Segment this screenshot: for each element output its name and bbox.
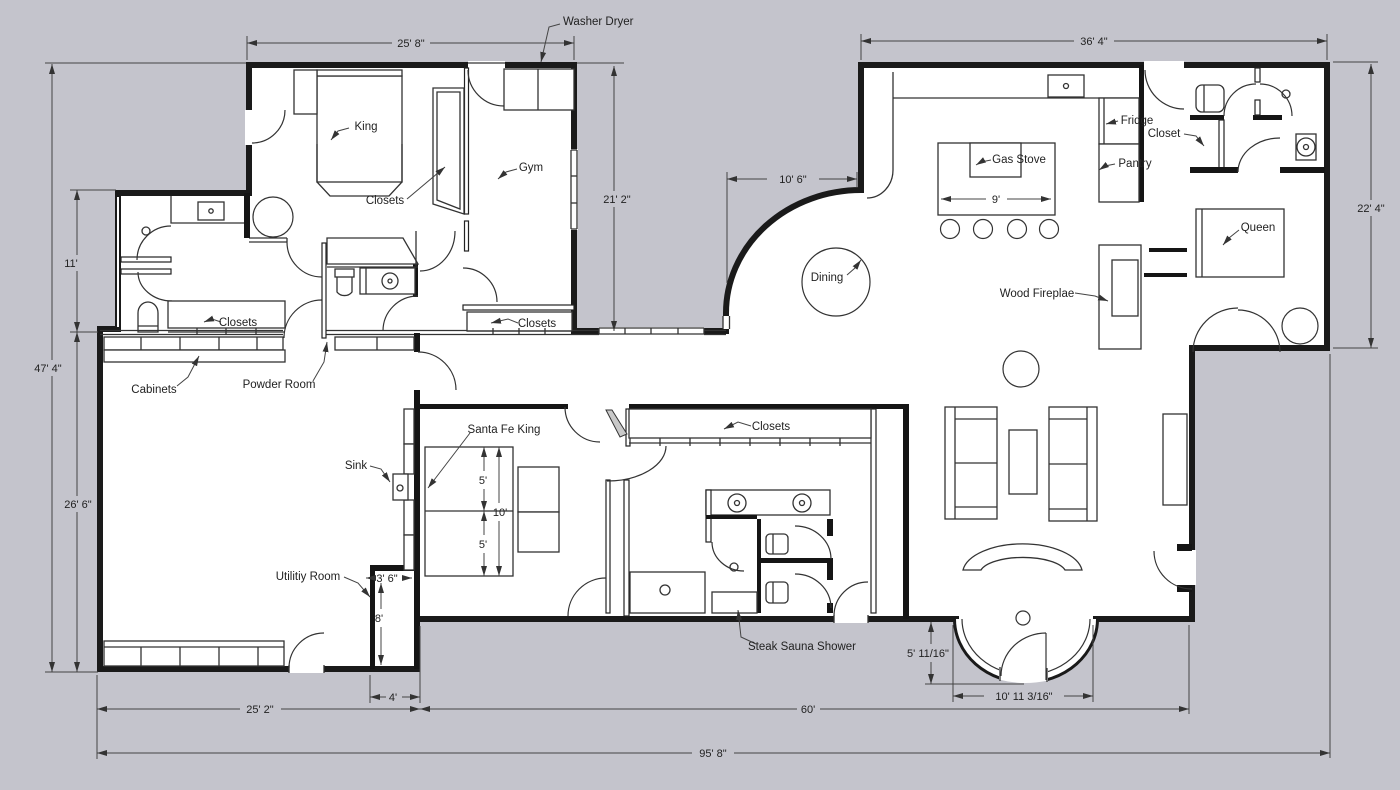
svg-text:Closets: Closets [752, 421, 791, 433]
svg-text:Closets: Closets [518, 318, 557, 330]
svg-text:Closets: Closets [366, 195, 405, 207]
svg-text:25' 8": 25' 8" [397, 38, 425, 50]
svg-text:10' 11 3/16": 10' 11 3/16" [995, 691, 1052, 703]
svg-text:Washer Dryer: Washer Dryer [563, 16, 634, 28]
svg-text:10': 10' [493, 507, 507, 519]
svg-text:8': 8' [375, 613, 383, 625]
svg-text:Closets: Closets [219, 317, 258, 329]
svg-text:Fridge: Fridge [1121, 115, 1154, 127]
svg-text:47' 4": 47' 4" [34, 363, 62, 375]
svg-text:5': 5' [479, 539, 487, 551]
svg-text:Utilitiy Room: Utilitiy Room [276, 571, 341, 583]
svg-text:Pantry: Pantry [1118, 158, 1151, 170]
svg-text:9': 9' [992, 194, 1000, 206]
svg-text:22' 4": 22' 4" [1357, 203, 1385, 215]
svg-text:26' 6": 26' 6" [64, 499, 92, 511]
svg-text:60': 60' [801, 704, 815, 716]
svg-text:5' 11/16": 5' 11/16" [907, 648, 949, 660]
svg-text:Wood Fireplae: Wood Fireplae [1000, 288, 1075, 300]
svg-text:Queen: Queen [1241, 222, 1276, 234]
svg-text:King: King [354, 121, 377, 133]
svg-text:Closet: Closet [1148, 128, 1181, 140]
svg-text:3' 6": 3' 6" [376, 573, 397, 585]
svg-text:5': 5' [479, 475, 487, 487]
svg-text:Gym: Gym [519, 162, 543, 174]
svg-text:Gas Stove: Gas Stove [992, 154, 1046, 166]
svg-text:11': 11' [64, 258, 78, 270]
svg-text:95' 8": 95' 8" [699, 748, 727, 760]
svg-text:Cabinets: Cabinets [131, 384, 177, 396]
svg-text:Powder Room: Powder Room [243, 379, 316, 391]
svg-text:4': 4' [389, 692, 397, 704]
svg-text:25' 2": 25' 2" [246, 704, 274, 716]
svg-text:Santa Fe King: Santa Fe King [468, 424, 541, 436]
svg-text:Dining: Dining [811, 272, 844, 284]
svg-text:Steak Sauna Shower: Steak Sauna Shower [748, 641, 856, 653]
svg-text:Sink: Sink [345, 460, 368, 472]
svg-text:21' 2": 21' 2" [603, 194, 631, 206]
svg-text:10' 6": 10' 6" [779, 174, 807, 186]
svg-text:36' 4": 36' 4" [1080, 36, 1108, 48]
